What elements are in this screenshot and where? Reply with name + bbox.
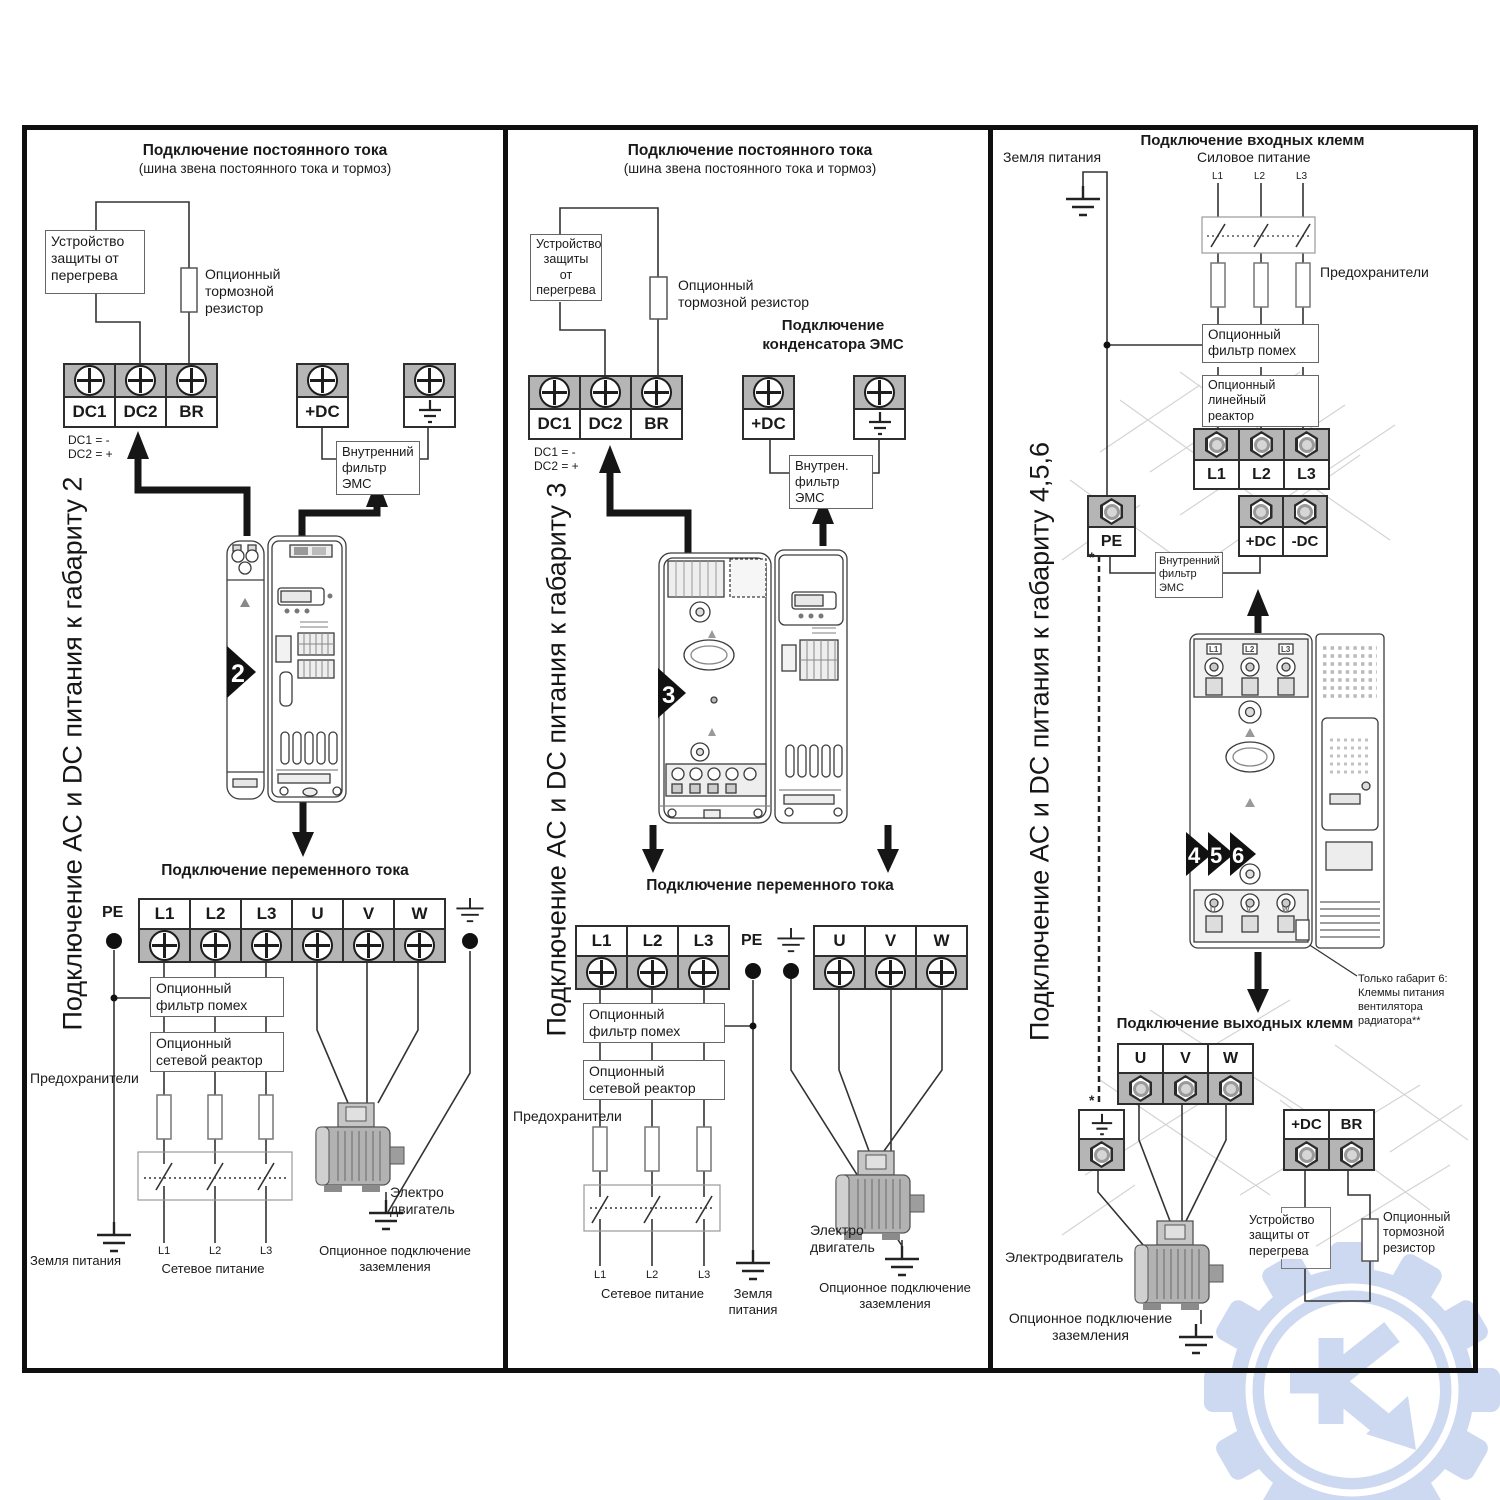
screw-terminal-icon: [404, 930, 435, 961]
phase-label: L3: [260, 1244, 272, 1258]
motor-label: Электро двигатель: [390, 1184, 455, 1218]
internal-emc-filter-box: Внутренний фильтр ЭМС: [1155, 552, 1223, 598]
fan-terminals-note: Только габарит 6: Клеммы питания вентиля…: [1358, 972, 1448, 1028]
terminal-label: L1: [1195, 461, 1238, 488]
svg-text:6: 6: [1232, 843, 1244, 868]
pe-label: PE: [741, 932, 762, 950]
motor-image: [1135, 1221, 1223, 1310]
svg-text:V: V: [1246, 905, 1252, 914]
svg-text:U: U: [1210, 905, 1216, 914]
output-terminal-block: U V W: [1117, 1043, 1254, 1105]
fuse-icon: [259, 1095, 273, 1139]
panel2-vertical-title: Подключение AC и DC питания к габариту 3: [542, 440, 573, 1080]
svg-text:5: 5: [1210, 843, 1222, 868]
plus-dc-terminal: +DC: [742, 375, 795, 440]
screw-terminal-icon: [125, 365, 156, 396]
screw-terminal-icon: [641, 377, 672, 408]
hex-nut-terminal-icon: [1174, 1075, 1197, 1102]
fuses-label: Предохранители: [1320, 264, 1429, 281]
brake-resistor-symbol: [181, 268, 197, 312]
phase-label: L3: [698, 1268, 710, 1282]
screw-terminal-icon: [590, 377, 621, 408]
supply-ground-label: Земля питания: [30, 1253, 121, 1269]
svg-text:2: 2: [231, 660, 245, 688]
terminal-label: L3: [242, 900, 291, 930]
terminal-label: BR: [167, 398, 216, 426]
screw-terminal-icon: [753, 377, 784, 408]
screw-terminal-icon: [539, 377, 570, 408]
hex-nut-terminal-icon: [1295, 431, 1318, 458]
hex-nut-terminal-icon: [1340, 1141, 1363, 1168]
screw-terminal-icon: [637, 957, 668, 988]
terminal-label: L3: [679, 927, 728, 957]
input-terminal-block: L1 L2 L3: [1193, 428, 1330, 490]
panel3-output-title: Подключение выходных клемм: [1110, 1015, 1360, 1032]
brake-resistor-label: Опционный тормозной резистор: [1383, 1210, 1450, 1256]
fuse-icon: [593, 1127, 607, 1171]
terminal-label: DC1: [530, 410, 579, 438]
motor-terminal-strip: U V W: [813, 925, 968, 990]
hex-nut-terminal-icon: [1250, 498, 1273, 525]
terminal-label: L2: [1240, 461, 1283, 488]
motor-image: [316, 1103, 404, 1192]
terminal-label: L2: [628, 927, 677, 957]
earth-icon: [456, 898, 483, 921]
svg-text:4: 4: [1188, 843, 1201, 868]
fuse-icon: [1296, 263, 1310, 307]
terminal-label: V: [866, 927, 915, 957]
wiring-diagram-page: 2: [0, 0, 1500, 1500]
screw-terminal-icon: [251, 930, 282, 961]
svg-text:L1: L1: [1209, 645, 1219, 654]
footnote-asterisk: *: [1089, 1092, 1094, 1108]
motor-label: Электро двигатель: [810, 1222, 875, 1256]
fuse-icon: [208, 1095, 222, 1139]
dc-terminal-block: DC1 DC2 BR: [528, 375, 683, 440]
terminal-label: W: [1209, 1045, 1252, 1074]
terminal-label: +DC: [1240, 528, 1282, 555]
phase-label: L2: [1254, 171, 1265, 182]
terminal-label: BR: [1330, 1111, 1373, 1140]
line-reactor-box: Опционный сетевой реактор: [150, 1032, 284, 1072]
terminal-label: -DC: [1284, 528, 1326, 555]
fuse-icon: [697, 1127, 711, 1171]
screw-terminal-icon: [586, 957, 617, 988]
panel1-dc-title: Подключение постоянного тока: [95, 142, 435, 160]
terminal-label: +DC: [744, 410, 793, 438]
brake-resistor-symbol: [1362, 1219, 1378, 1261]
earth-icon: [885, 1246, 919, 1275]
supply-ground-label: Земля питания: [713, 1286, 793, 1317]
terminal-label: W: [395, 900, 444, 930]
screw-terminal-icon: [824, 957, 855, 988]
optional-ground-label: Опционное подключение заземления: [998, 1310, 1183, 1344]
phase-label: L1: [594, 1268, 606, 1282]
pe-connection-dot: [106, 933, 122, 949]
screw-terminal-icon: [302, 930, 333, 961]
terminal-label: U: [815, 927, 864, 957]
phase-label: L2: [209, 1244, 221, 1258]
screw-terminal-icon: [864, 377, 895, 408]
fuses-label: Предохранители: [30, 1070, 139, 1087]
fuse-icon: [645, 1127, 659, 1171]
terminal-label: +DC: [298, 398, 347, 426]
screw-terminal-icon: [176, 365, 207, 396]
earth-icon: [405, 398, 454, 426]
optional-ground-label: Опционное подключение заземления: [305, 1243, 485, 1274]
optional-ground-label: Опционное подключение заземления: [810, 1280, 980, 1311]
mains-supply-label: Сетевое питание: [585, 1286, 720, 1302]
earth-icon: [777, 928, 804, 951]
screw-terminal-icon: [74, 365, 105, 396]
screw-terminal-icon: [875, 957, 906, 988]
screw-terminal-icon: [200, 930, 231, 961]
terminal-label: V: [344, 900, 393, 930]
terminal-label: DC2: [581, 410, 630, 438]
brake-resistor-label: Опционный тормозной резистор: [678, 277, 809, 311]
ground-connection-dot: [462, 933, 478, 949]
pe-terminal-block: PE: [1087, 495, 1136, 557]
terminal-label: L3: [1285, 461, 1328, 488]
terminal-label: V: [1164, 1045, 1207, 1074]
panel2-dc-title: Подключение постоянного тока: [580, 142, 920, 160]
earth-icon: [1080, 1111, 1123, 1140]
motor-label: Электродвигатель: [1005, 1249, 1123, 1266]
hex-nut-terminal-icon: [1205, 431, 1228, 458]
vfd-drive-size456-image: [1190, 634, 1384, 948]
power-supply-label: Силовое питание: [1197, 149, 1311, 166]
panel3-vertical-title: Подключение AC и DC питания к габариту 4…: [1025, 422, 1056, 1062]
screw-terminal-icon: [307, 365, 338, 396]
hex-nut-terminal-icon: [1090, 1141, 1113, 1168]
emc-capacitor-title: Подключение конденсатора ЭМС: [748, 317, 918, 355]
pe-connection-dot: [745, 963, 761, 979]
phase-label: L2: [646, 1268, 658, 1282]
fuse-icon: [1254, 263, 1268, 307]
overheat-protection-box: Устройство защиты от перегрева: [530, 234, 602, 301]
screw-terminal-icon: [414, 365, 445, 396]
svg-text:L3: L3: [1281, 645, 1291, 654]
panel1-vertical-title: Подключение AC и DC питания к габариту 2: [58, 434, 89, 1074]
ground-terminal: [403, 363, 456, 428]
terminal-label: DC1: [65, 398, 114, 426]
dc-terminal-block: DC1 DC2 BR: [63, 363, 218, 428]
terminal-label: W: [917, 927, 966, 957]
panel2-ac-title: Подключение переменного тока: [600, 877, 940, 895]
panel1-dc-subtitle: (шина звена постоянного тока и тормоз): [85, 161, 445, 176]
phase-label: L1: [158, 1244, 170, 1258]
screw-terminal-icon: [149, 930, 180, 961]
mains-supply-label: Сетевое питание: [148, 1261, 278, 1277]
brake-terminal-block: +DC BR: [1283, 1109, 1375, 1171]
phase-label: L3: [1296, 171, 1307, 182]
panel1-ac-title: Подключение переменного тока: [115, 862, 455, 880]
ac-input-terminal-strip: L1 L2 L3: [575, 925, 730, 990]
supply-ground-label: Земля питания: [1003, 149, 1101, 166]
overheat-protection-box: Устройство защиты от перегрева: [45, 230, 145, 294]
svg-text:W: W: [1282, 905, 1290, 914]
terminal-label: PE: [1089, 528, 1134, 555]
terminal-label: DC2: [116, 398, 165, 426]
terminal-label: L1: [577, 927, 626, 957]
svg-text:L2: L2: [1245, 645, 1255, 654]
terminal-label: U: [293, 900, 342, 930]
earth-icon: [97, 1222, 131, 1251]
internal-emc-filter-box: Внутренний фильтр ЭМС: [336, 441, 420, 495]
earth-icon: [855, 410, 904, 438]
noise-filter-box: Опционный фильтр помех: [1202, 324, 1319, 363]
dc-bus-terminal-block: +DC -DC: [1238, 495, 1328, 557]
screw-terminal-icon: [688, 957, 719, 988]
footnote-asterisk: *: [1089, 549, 1094, 565]
ground-connection-dot: [783, 963, 799, 979]
ac-terminal-strip: L1 L2 L3 U V W: [138, 898, 446, 963]
hex-nut-terminal-icon: [1219, 1075, 1242, 1102]
phase-label: L1: [1212, 171, 1223, 182]
hex-nut-terminal-icon: [1295, 1141, 1318, 1168]
noise-filter-box: Опционный фильтр помех: [583, 1003, 725, 1043]
internal-emc-filter-box: Внутрен. фильтр ЭМС: [789, 455, 873, 509]
terminal-label: L1: [140, 900, 189, 930]
terminal-label: +DC: [1285, 1111, 1328, 1140]
terminal-label: L2: [191, 900, 240, 930]
fuse-icon: [1211, 263, 1225, 307]
screw-terminal-icon: [353, 930, 384, 961]
line-reactor-box: Опционный сетевой реактор: [583, 1060, 725, 1100]
panel3-input-title: Подключение входных клемм: [1080, 132, 1425, 149]
ground-terminal: [853, 375, 906, 440]
line-reactor-box: Опционный линейный реактор: [1202, 375, 1319, 427]
hex-nut-terminal-icon: [1294, 498, 1317, 525]
earth-icon: [1179, 1324, 1213, 1353]
plus-dc-terminal: +DC: [296, 363, 349, 428]
earth-icon: [1066, 186, 1100, 215]
brake-resistor-label: Опционный тормозной резистор: [205, 266, 280, 316]
panel2-dc-subtitle: (шина звена постоянного тока и тормоз): [570, 161, 930, 176]
overheat-protection-label: Устройство защиты от перегрева: [1247, 1213, 1316, 1259]
output-ground-terminal: [1078, 1109, 1125, 1171]
terminal-label: BR: [632, 410, 681, 438]
screw-terminal-icon: [926, 957, 957, 988]
terminal-label: U: [1119, 1045, 1162, 1074]
fuses-label: Предохранители: [513, 1108, 622, 1125]
hex-nut-terminal-icon: [1250, 431, 1273, 458]
pe-label: PE: [102, 904, 123, 922]
brake-resistor-symbol: [650, 277, 667, 319]
noise-filter-box: Опционный фильтр помех: [150, 977, 284, 1017]
svg-text:3: 3: [662, 682, 675, 709]
vfd-drive-size3-image: [659, 550, 847, 823]
earth-icon: [736, 1250, 770, 1279]
fuse-icon: [157, 1095, 171, 1139]
hex-nut-terminal-icon: [1129, 1075, 1152, 1102]
hex-nut-terminal-icon: [1100, 498, 1123, 525]
